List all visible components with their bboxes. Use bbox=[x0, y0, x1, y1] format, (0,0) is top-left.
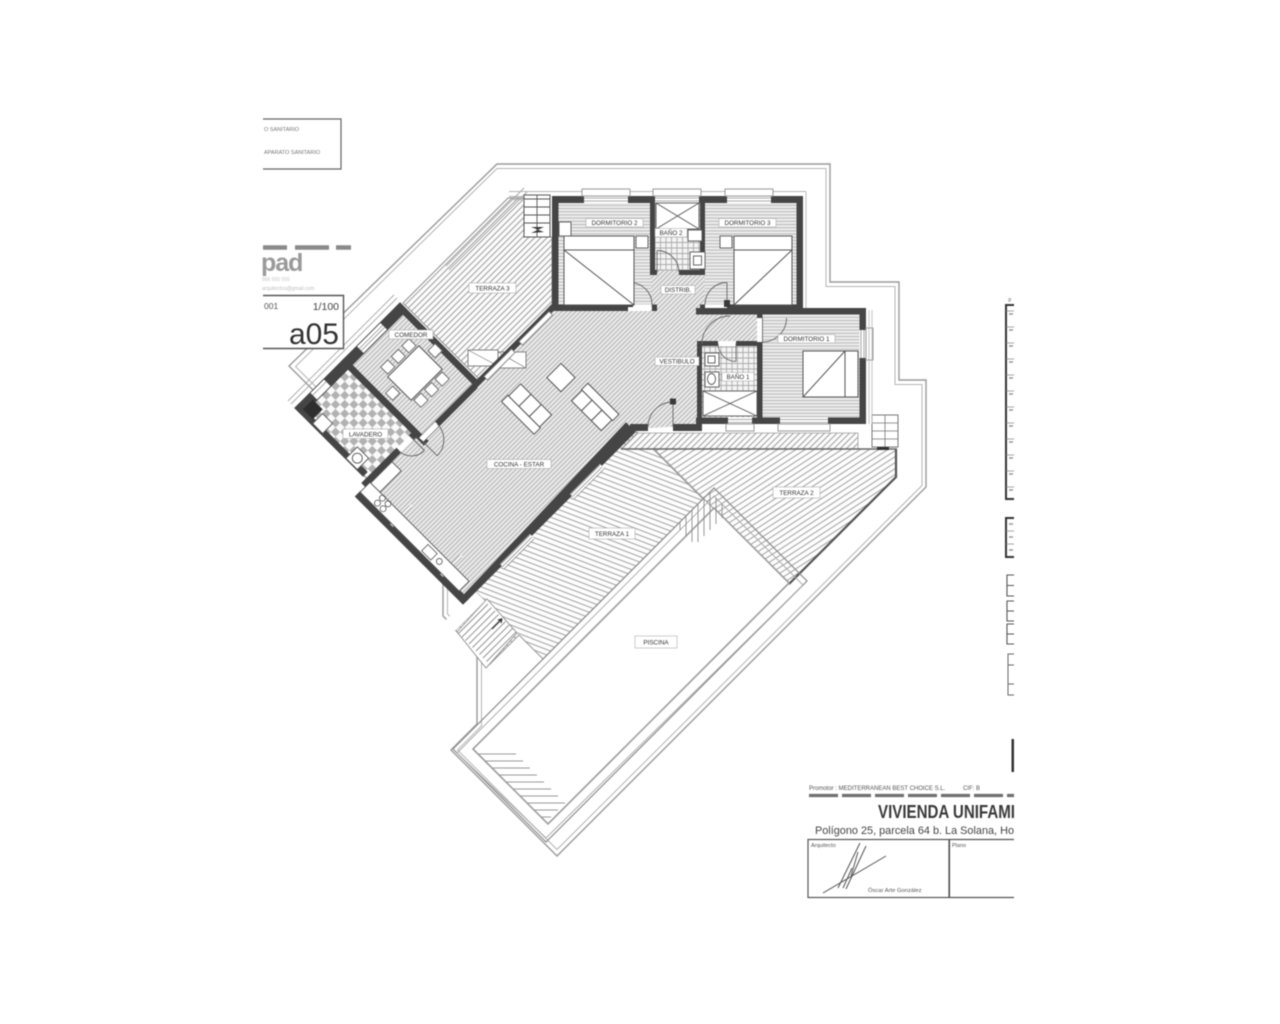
svg-text:TERRAZA 1: TERRAZA 1 bbox=[595, 531, 630, 538]
svg-text:O SANITARIO: O SANITARIO bbox=[264, 127, 300, 133]
svg-text:VESTIBULO: VESTIBULO bbox=[659, 359, 694, 366]
svg-text:DORMITORIO 2: DORMITORIO 2 bbox=[591, 220, 638, 227]
svg-text:1/100: 1/100 bbox=[313, 301, 339, 313]
svg-text:LAVADERO: LAVADERO bbox=[349, 432, 382, 439]
svg-text:Plano: Plano bbox=[952, 843, 966, 849]
svg-text:CIF: B: CIF: B bbox=[963, 786, 980, 792]
svg-text:Óscar Arte González: Óscar Arte González bbox=[868, 887, 922, 894]
svg-text:TERRAZA 2: TERRAZA 2 bbox=[779, 490, 814, 497]
svg-text:PISCINA: PISCINA bbox=[643, 640, 669, 647]
svg-text:BAÑO 2: BAÑO 2 bbox=[659, 228, 683, 237]
svg-text:Polígono 25, parcela 64 b. La: Polígono 25, parcela 64 b. La Solana, Ho bbox=[815, 825, 1014, 837]
svg-text:Arquitecto: Arquitecto bbox=[811, 843, 836, 849]
svg-text:APARATO SANITARIO: APARATO SANITARIO bbox=[264, 150, 321, 156]
svg-text:COMEDOR: COMEDOR bbox=[395, 332, 428, 339]
svg-text:COCINA - ESTAR: COCINA - ESTAR bbox=[494, 462, 545, 469]
svg-text:966 555 555: 966 555 555 bbox=[262, 277, 290, 283]
svg-text:pad: pad bbox=[261, 249, 302, 277]
svg-text:a05: a05 bbox=[289, 318, 339, 351]
svg-text:DORMITORIO 3: DORMITORIO 3 bbox=[724, 220, 771, 227]
svg-text:Promotor : MEDITERRANEAN BEST: Promotor : MEDITERRANEAN BEST CHOICE S.L… bbox=[809, 786, 946, 792]
svg-text:VIVIENDA UNIFAMI: VIVIENDA UNIFAMI bbox=[878, 802, 1015, 822]
svg-text:001: 001 bbox=[264, 301, 278, 311]
svg-text:TERRAZA 3: TERRAZA 3 bbox=[475, 286, 510, 293]
svg-text:DISTRIB.: DISTRIB. bbox=[665, 287, 692, 294]
svg-text:arquitectos@gmail.com: arquitectos@gmail.com bbox=[262, 286, 314, 292]
svg-text:BAÑO 1: BAÑO 1 bbox=[726, 372, 750, 381]
svg-text:DORMITORIO 1: DORMITORIO 1 bbox=[783, 336, 830, 343]
